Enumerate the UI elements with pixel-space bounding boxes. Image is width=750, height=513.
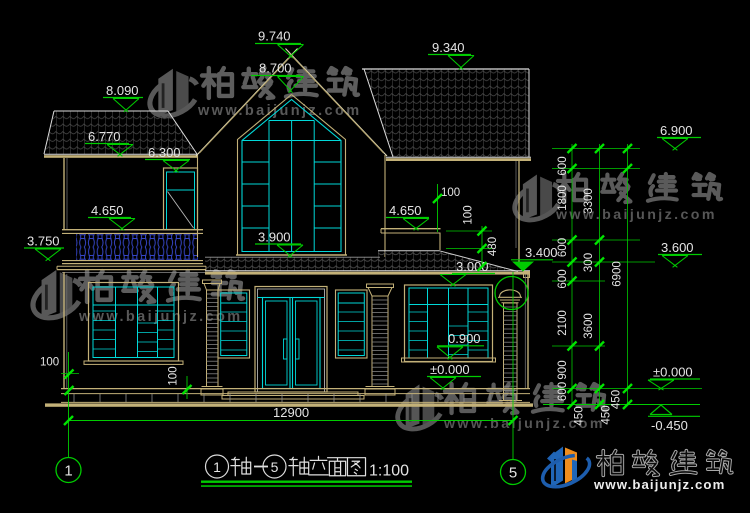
- svg-text:4.650: 4.650: [389, 203, 422, 218]
- svg-text:450: 450: [611, 390, 623, 409]
- svg-text:3300: 3300: [583, 188, 595, 214]
- svg-text:1: 1: [64, 463, 72, 480]
- svg-text:900: 900: [557, 360, 569, 379]
- svg-text:100: 100: [441, 187, 460, 199]
- svg-text:3.750: 3.750: [27, 234, 60, 249]
- svg-text:600: 600: [557, 156, 569, 175]
- svg-text:5: 5: [271, 459, 279, 475]
- svg-text:9.340: 9.340: [432, 40, 465, 55]
- svg-text:8.090: 8.090: [106, 83, 139, 98]
- svg-text:1800: 1800: [557, 185, 569, 211]
- svg-text:100: 100: [168, 366, 180, 385]
- svg-text:6.770: 6.770: [88, 129, 121, 144]
- svg-text:1:100: 1:100: [369, 463, 409, 480]
- svg-text:3.900: 3.900: [258, 230, 291, 245]
- svg-text:-0.450: -0.450: [651, 418, 688, 433]
- svg-text:1: 1: [213, 459, 221, 475]
- svg-text:0.900: 0.900: [448, 331, 481, 346]
- svg-text:www.baijunjz.com: www.baijunjz.com: [593, 477, 725, 492]
- svg-text:3.400: 3.400: [525, 245, 558, 260]
- svg-text:±0.000: ±0.000: [653, 365, 693, 380]
- svg-text:100: 100: [463, 205, 475, 224]
- svg-text:8.700: 8.700: [259, 61, 292, 76]
- svg-text:600: 600: [557, 382, 569, 401]
- svg-text:6.300: 6.300: [148, 145, 181, 160]
- svg-text:300: 300: [583, 253, 595, 272]
- svg-text:3600: 3600: [583, 313, 595, 339]
- svg-text:3.600: 3.600: [661, 240, 694, 255]
- svg-text:5: 5: [509, 465, 517, 482]
- svg-text:9.740: 9.740: [258, 29, 291, 44]
- svg-text:480: 480: [487, 237, 499, 256]
- svg-text:450: 450: [574, 406, 586, 425]
- svg-text:www.baijunjz.com: www.baijunjz.com: [555, 207, 717, 223]
- svg-text:600: 600: [557, 269, 569, 288]
- svg-text:2100: 2100: [557, 310, 569, 336]
- svg-text:±0.000: ±0.000: [430, 362, 470, 377]
- svg-text:12900: 12900: [273, 405, 309, 420]
- svg-text:600: 600: [557, 238, 569, 257]
- svg-text:100: 100: [40, 357, 59, 369]
- svg-text:4.650: 4.650: [91, 203, 124, 218]
- svg-text:6900: 6900: [612, 261, 624, 287]
- svg-text:6.900: 6.900: [660, 123, 693, 138]
